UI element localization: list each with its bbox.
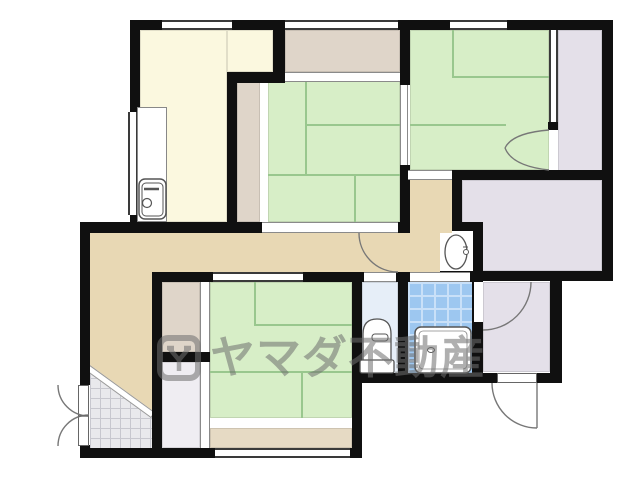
closet-north bbox=[285, 30, 400, 72]
wall-west-hall bbox=[80, 233, 90, 385]
wall-dk-east bbox=[227, 83, 237, 233]
watermark-text: ヤマダ不動産 bbox=[210, 334, 486, 382]
window-north-3 bbox=[450, 20, 507, 30]
room-tatami-northeast bbox=[410, 30, 549, 170]
wall-storage-north bbox=[450, 170, 613, 180]
washbasin-alcove bbox=[440, 230, 473, 272]
hallway-west-leg bbox=[90, 272, 152, 368]
wall-storage-notch-h bbox=[452, 222, 483, 231]
wall-post-ne bbox=[548, 122, 558, 130]
tatami-line bbox=[305, 124, 400, 126]
utility-room-southeast bbox=[483, 282, 550, 372]
fusuma-closet-north bbox=[285, 72, 400, 82]
tokonoma-gap bbox=[260, 80, 268, 222]
wall-closet-east bbox=[400, 20, 410, 85]
window-engawa-south bbox=[215, 448, 350, 458]
engawa-veranda-south bbox=[210, 428, 352, 448]
tatami-line bbox=[305, 80, 307, 175]
floor-plan: ヤマダ不動産 bbox=[0, 0, 640, 480]
wall-dk-closet bbox=[273, 20, 285, 80]
sliding-door-center-hall bbox=[262, 222, 398, 233]
wall-east-outer bbox=[602, 20, 613, 281]
window-north-2 bbox=[285, 20, 398, 30]
kitchen-counter bbox=[137, 107, 167, 222]
engawa-gap bbox=[210, 418, 352, 428]
door-arc-rear-exit bbox=[492, 383, 537, 428]
wall-west-upper bbox=[130, 20, 140, 112]
room-storage-east bbox=[462, 180, 602, 271]
tatami-line bbox=[254, 324, 352, 326]
door-bath bbox=[410, 272, 470, 282]
tokonoma-strip bbox=[237, 80, 260, 222]
tatami-line bbox=[354, 176, 356, 222]
wall-storage-west bbox=[452, 178, 462, 222]
tatami-line bbox=[452, 30, 454, 78]
fusuma-center-east bbox=[400, 85, 408, 165]
wall-storage-notch-v bbox=[473, 231, 483, 272]
tatami-line bbox=[268, 174, 400, 176]
room-dining-kitchen-upper bbox=[227, 30, 273, 72]
window-ne-veranda bbox=[549, 30, 558, 122]
hallway-corridor bbox=[90, 233, 440, 272]
window-north-1 bbox=[162, 20, 232, 30]
tatami-line bbox=[410, 124, 506, 126]
door-gap-utility bbox=[474, 282, 483, 322]
tatami-line bbox=[452, 76, 549, 78]
window-south-room bbox=[213, 272, 303, 282]
tatami-line bbox=[254, 282, 256, 325]
wall-utility-east bbox=[550, 281, 562, 382]
door-leaf-rear-exit bbox=[497, 373, 537, 383]
watermark: ヤマダ不動産 bbox=[156, 334, 486, 382]
yamada-logo-icon bbox=[156, 334, 202, 382]
veranda-east bbox=[558, 30, 602, 172]
door-toilet bbox=[364, 272, 396, 282]
wall-dk-south-inner bbox=[227, 72, 285, 83]
entrance-door-leaves bbox=[78, 385, 89, 446]
room-tatami-center bbox=[268, 80, 400, 222]
sliding-door-ne-hall bbox=[408, 170, 452, 180]
